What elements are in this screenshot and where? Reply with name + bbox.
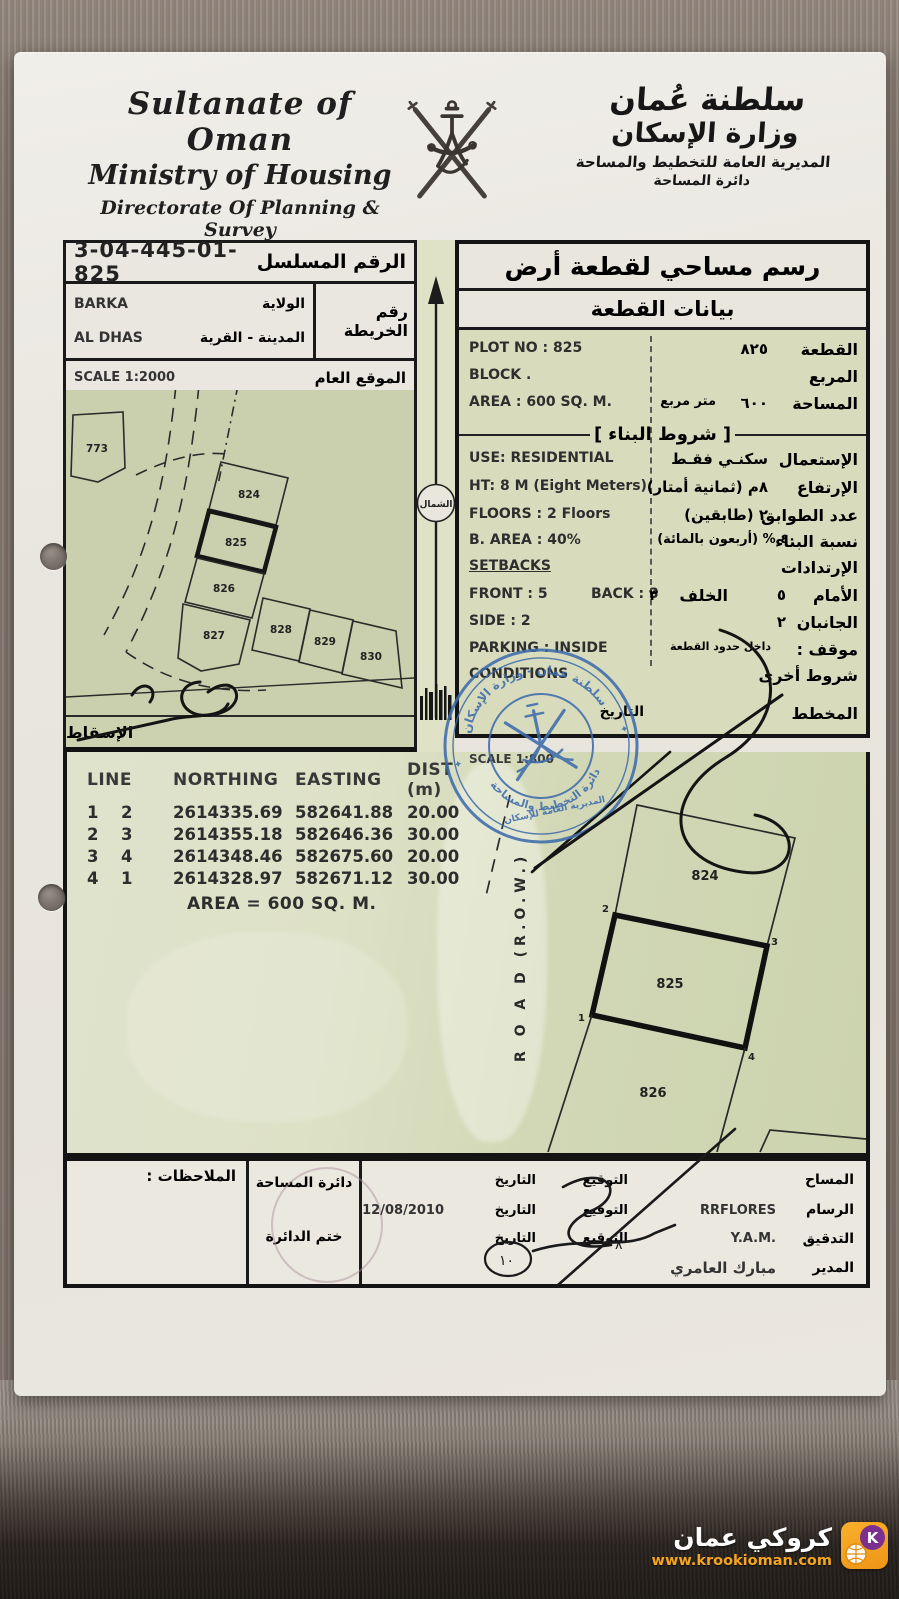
table-row: 23 2614355.18582646.3630.00 — [87, 825, 487, 844]
area-en: AREA : 600 SQ. M. — [469, 394, 612, 410]
built-area-label: نسبة البناء — [775, 532, 858, 551]
oman-national-emblem-icon — [398, 92, 506, 217]
serial-number-value: 3-04-445-01-825 — [66, 238, 257, 286]
floors-ar-value: ٢ (طابقين) — [684, 506, 768, 524]
town-label: المدينة - القرية — [200, 330, 305, 346]
corner-label-2: 2 — [602, 904, 609, 915]
detail-plot-label: 826 — [639, 1086, 666, 1101]
col-easting: EASTING — [295, 770, 407, 790]
map-number-label: رقم الخريطة — [316, 284, 414, 358]
map-road-curve — [136, 453, 226, 475]
map-plot-label: 827 — [203, 630, 225, 642]
scale-2000-value: SCALE 1:2000 — [74, 370, 175, 385]
area-total: AREA = 600 SQ. M. — [187, 894, 487, 914]
map-boundary-dashdot — [218, 390, 238, 485]
table-row: 34 2614348.46582675.6020.00 — [87, 847, 487, 866]
area-ar-value: ٦٠٠ — [741, 394, 768, 412]
built-area-en: B. AREA : 40% — [469, 532, 581, 548]
scan-light-blotch — [127, 932, 407, 1122]
floors-en: FLOORS : 2 Floors — [469, 506, 610, 522]
town-value: AL DHAS — [74, 330, 143, 346]
header-ministry-en: Ministry of Housing — [70, 160, 410, 191]
plot-no-en: PLOT NO : 825 — [469, 340, 582, 356]
plot-no-label: القطعة — [801, 340, 858, 359]
serial-number-label: الرقم المسلسل — [257, 251, 414, 273]
plot-no-ar-value: ٨٢٥ — [741, 340, 768, 358]
plot-data-subtitle: بيانات القطعة — [459, 291, 866, 330]
map-plot-label: 826 — [213, 583, 235, 595]
punch-hole-bottom — [38, 884, 65, 911]
front-label: الأمام — [813, 586, 858, 605]
serial-row: 3-04-445-01-825 الرقم المسلسل — [66, 243, 414, 284]
handwritten-signatures-footer: ١٠ ٨ — [63, 1157, 870, 1288]
map-plot-label: 773 — [86, 443, 108, 455]
table-row: 12 2614335.69582641.8820.00 — [87, 803, 487, 822]
building-conditions-title: شروط البناء — [606, 424, 719, 445]
document-title: رسم مساحي لقطعة أرض — [459, 244, 866, 291]
block-en: BLOCK . — [469, 367, 531, 383]
floors-label: عدد الطوابق — [761, 506, 858, 525]
north-label: الشمال — [420, 500, 453, 510]
map-plot-label: 830 — [360, 651, 382, 663]
north-arrow-head — [428, 276, 444, 304]
side-label: الجانبان — [797, 613, 858, 632]
map-number-row: BARKA الولاية AL DHAS المدينة - القرية ر… — [66, 284, 414, 361]
detail-plot-label: 825 — [656, 977, 683, 992]
table-row: 41 2614328.97582671.1230.00 — [87, 869, 487, 888]
area-ar-unit: متر مربع — [660, 394, 716, 409]
watermark-title: كروكي عمان — [632, 1523, 832, 1552]
map-plot-label: 825 — [225, 537, 247, 549]
serial-info-table: 3-04-445-01-825 الرقم المسلسل BARKA الول… — [63, 240, 417, 397]
map-road-dashed-2 — [126, 390, 199, 652]
height-en: HT: 8 M (Eight Meters) — [469, 478, 647, 494]
map-plot-label: 824 — [238, 489, 260, 501]
map-road-dashed-1 — [104, 390, 176, 635]
svg-text:✦: ✦ — [453, 759, 463, 772]
wilayat-town-cell: BARKA الولاية AL DHAS المدينة - القرية — [66, 284, 316, 358]
corner-label-1: 1 — [578, 1013, 585, 1024]
detail-plot-826-right-edge — [717, 1048, 745, 1152]
height-label: الإرتفاع — [797, 478, 858, 497]
general-location-label: الموقع العام — [315, 369, 406, 387]
handwritten-signature-map — [70, 662, 310, 767]
header-directorate-ar: المديرية العامة للتخطيط والمساحة — [543, 153, 864, 171]
krooki-oman-logo-icon: K — [841, 1522, 888, 1569]
detail-plot-826-left-edge — [548, 1015, 592, 1152]
map-plot-label: 829 — [314, 636, 336, 648]
header-department-ar: دائرة المساحة — [541, 173, 862, 189]
setbacks-en: SETBACKS — [469, 558, 551, 574]
height-ar-value: ٨م (ثمانية أمتار) — [647, 478, 768, 496]
use-en: USE: RESIDENTIAL — [469, 450, 614, 466]
punch-hole-top — [40, 543, 67, 570]
corner-label-4: 4 — [748, 1052, 755, 1063]
detail-plot-partial — [760, 1130, 866, 1152]
wilayat-label: الولاية — [262, 296, 305, 312]
setbacks-label: الإرتدادات — [781, 558, 858, 577]
use-ar-value: سكنـي فقـط — [671, 450, 768, 468]
use-label: الإستعمال — [779, 450, 858, 469]
col-line: LINE — [87, 770, 121, 790]
handwritten-number: ١٠ — [499, 1253, 514, 1269]
handwritten-signature-planner — [520, 600, 805, 892]
header-arabic: سلطنة عُمان وزارة الإسكان المديرية العام… — [541, 82, 868, 189]
map-plot-label: 828 — [270, 624, 292, 636]
area-label: المساحة — [792, 394, 858, 413]
header-title-en: Sultanate of Oman — [70, 86, 410, 158]
wilayat-value: BARKA — [74, 296, 128, 312]
watermark-url: www.krookioman.com — [632, 1553, 832, 1569]
coordinates-table: LINE NORTHING EASTING DIST (m) 12 261433… — [87, 760, 487, 914]
block-label: المربع — [809, 367, 858, 386]
header-ministry-ar: وزارة الإسكان — [544, 118, 866, 149]
header-directorate-en: Directorate Of Planning & Survey — [70, 197, 410, 241]
globe-icon — [844, 1542, 868, 1566]
col-northing: NORTHING — [173, 770, 295, 790]
header-title-ar: سلطنة عُمان — [546, 82, 869, 118]
building-conditions-header: [ شروط البناء ] — [459, 424, 866, 445]
handwritten-number: ٨ — [615, 1237, 623, 1253]
watermark: كروكي عمان www.krookioman.com K — [632, 1522, 888, 1569]
parking-label: موقف : — [797, 640, 858, 659]
corner-label-3: 3 — [771, 937, 778, 948]
